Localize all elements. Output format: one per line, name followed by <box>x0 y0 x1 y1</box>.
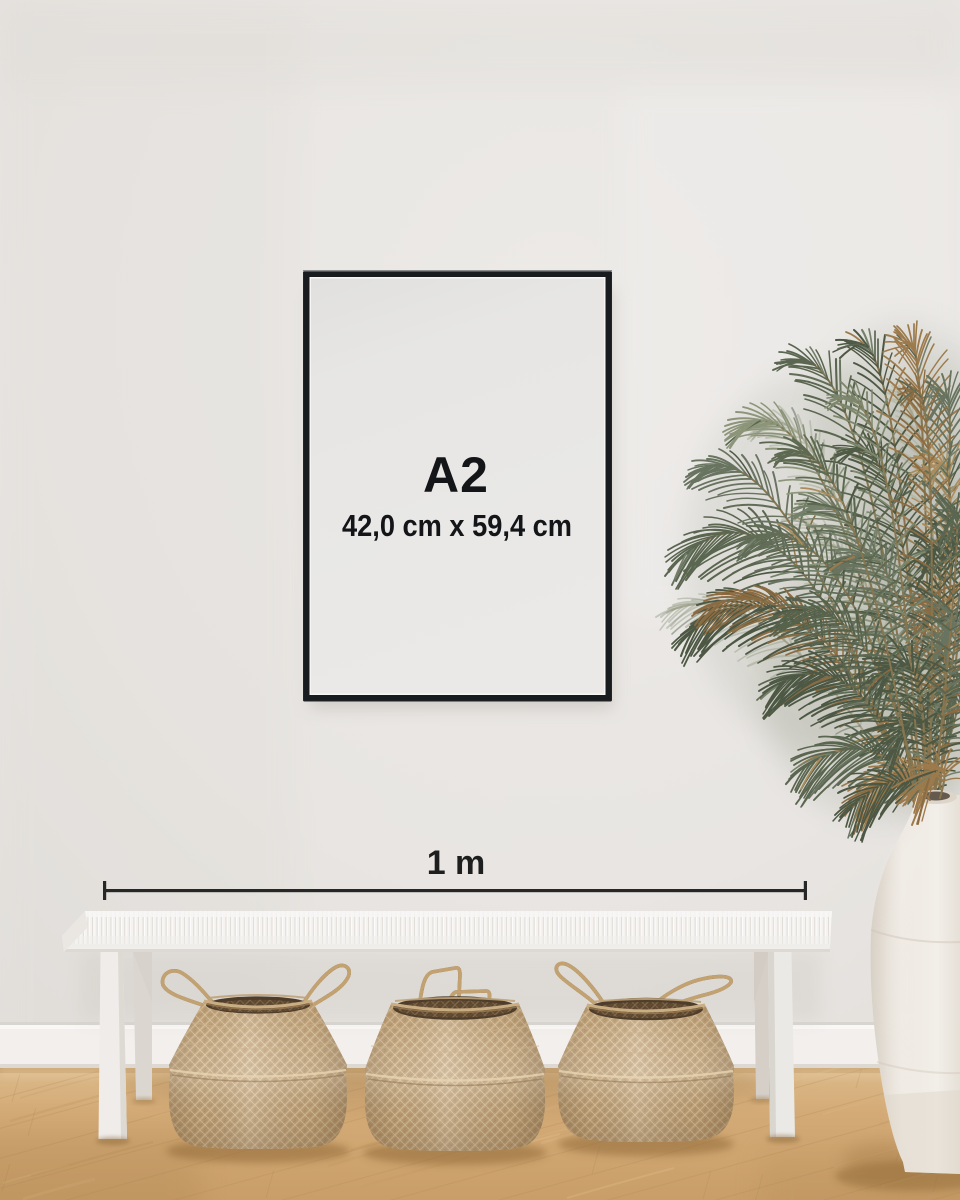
svg-text:A2: A2 <box>423 447 489 503</box>
svg-text:42,0 cm x 59,4 cm: 42,0 cm x 59,4 cm <box>342 508 572 543</box>
svg-text:1 m: 1 m <box>427 844 486 882</box>
